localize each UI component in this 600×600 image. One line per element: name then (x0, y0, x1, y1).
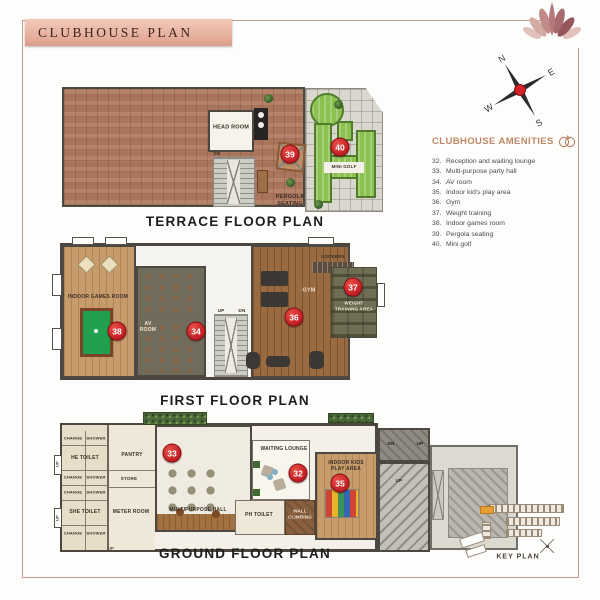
amenity-number: 35. (432, 189, 446, 196)
amenity-label: Pergola seating (446, 231, 493, 238)
pergola-seating-label: PERGOLA SEATING (268, 194, 312, 208)
plant-icon (286, 178, 295, 187)
av-room-label: AV ROOM (138, 321, 158, 334)
treadmill (261, 292, 288, 307)
first-floor-title: FIRST FLOOR PLAN (95, 393, 375, 408)
lockers-label: LOCKERS (321, 254, 344, 260)
landing-dn-label: DN (388, 441, 395, 447)
multipurpose-hall-label: MULTIPURPOSE HALL (169, 507, 226, 513)
marker-32-waiting-lounge: 32 (289, 464, 308, 483)
he-toilet-label: HE TOILET (71, 455, 99, 461)
marker-35-kids-play: 35 (331, 474, 350, 493)
amenity-item: 32.Reception and waiting lounge (432, 156, 578, 166)
amenity-item: 36.Gym (432, 198, 578, 208)
stair-landing-cross (225, 318, 237, 373)
amenity-item: 38.Indoor games room (432, 219, 578, 229)
entry-inner-court (448, 468, 508, 538)
amenity-item: 35.Indoor kid's play area (432, 187, 578, 197)
amenities-list: 32.Reception and waiting lounge 33.Multi… (432, 156, 578, 250)
lounge-table (272, 469, 278, 475)
lotus-petals (521, 2, 582, 41)
amenity-number: 36. (432, 199, 446, 206)
wall (108, 487, 155, 488)
key-plan-clubhouse-highlight (480, 506, 494, 514)
wall (108, 470, 155, 471)
billiards-cue-ball (94, 329, 98, 333)
amenity-number: 33. (432, 168, 446, 175)
amenity-label: Multi-purpose party hall (446, 168, 517, 175)
frame-left (22, 20, 23, 578)
kids-play-label: INDOOR KIDS PLAY AREA (323, 460, 369, 473)
amenity-number: 39. (432, 231, 446, 238)
wall-climbing-label: WALL CLIMBING (287, 508, 313, 519)
ground-floor-title: GROUND FLOOR PLAN (105, 546, 385, 561)
key-plan-plot-row (506, 529, 542, 537)
plant-box (253, 461, 260, 468)
amenity-number: 32. (432, 158, 446, 165)
plant-icon (264, 94, 273, 103)
exercise-bike (246, 352, 260, 369)
mini-golf-label: MINI GOLF (331, 164, 356, 170)
pantry-label: PANTRY (121, 452, 142, 458)
amenity-item: 40.Mini golf (432, 240, 578, 250)
marker-33-party-hall: 33 (163, 444, 182, 463)
window-ledge (52, 274, 62, 296)
amenities-header: CLUBHOUSE AMENITIES (432, 134, 578, 149)
meter-room-label: METER ROOM (113, 509, 149, 515)
treadmill (261, 271, 288, 286)
first-dn-label: DN (239, 308, 246, 314)
key-plan-label: KEY PLAN (496, 554, 539, 563)
amenity-label: Indoor kid's play area (446, 189, 510, 196)
key-plan-plot-row (488, 504, 564, 513)
store-label: STORE (121, 476, 137, 482)
amenity-number: 37. (432, 210, 446, 217)
kids-play-mat (325, 489, 359, 518)
amenity-label: Reception and waiting lounge (446, 158, 535, 165)
plant-box (253, 489, 260, 496)
compass-n: N (497, 53, 508, 65)
amenity-item: 39.Pergola seating (432, 229, 578, 239)
amenity-label: AV room (446, 179, 472, 186)
frame-right (578, 48, 579, 577)
shaft-fixture (258, 122, 264, 128)
amenity-number: 34. (432, 179, 446, 186)
amenity-item: 33.Multi-purpose party hall (432, 166, 578, 176)
ground-up-label: UP (55, 461, 60, 467)
ph-toilet-label: PH TOILET (245, 512, 273, 518)
window-ledge (52, 328, 62, 350)
rowing-machine (266, 356, 290, 367)
window-ledge (72, 237, 94, 245)
terrace-dn-label: DN (214, 151, 221, 157)
compass-rose: N E S W (478, 46, 562, 134)
lounge-table (267, 474, 273, 480)
banquet-tables (163, 465, 219, 513)
shower-label: SHOWER (86, 475, 105, 480)
change-label: CHANGE (64, 436, 83, 441)
plant-icon (314, 200, 323, 209)
change-label: CHANGE (64, 531, 83, 536)
amenity-number: 40. (432, 241, 446, 248)
title-banner: CLUBHOUSE PLAN (25, 19, 232, 46)
marker-34-av-room: 34 (187, 322, 206, 341)
she-toilet-label: SHE TOILET (69, 509, 100, 515)
amenities-title: CLUBHOUSE AMENITIES (432, 136, 554, 147)
terrace-deck (62, 87, 305, 207)
amenity-number: 38. (432, 220, 446, 227)
landing-up-label: UP (417, 441, 424, 447)
marker-38-indoor-games: 38 (108, 322, 127, 341)
change-label: CHANGE (64, 475, 83, 480)
indoor-games-room-label: INDOOR GAMES ROOM (68, 294, 128, 300)
marker-37-weight-training: 37 (344, 278, 363, 297)
head-room-label: HEAD ROOM (213, 125, 249, 132)
shower-label: SHOWER (86, 436, 105, 441)
window-ledge (377, 283, 385, 307)
deck-bench (257, 170, 268, 193)
clubhouse-plan-poster: CLUBHOUSE PLAN N E S W CLUBHOUSE AMENITI… (0, 0, 600, 600)
amenity-label: Indoor games room (446, 220, 505, 227)
marker-39-pergola: 39 (281, 145, 300, 164)
gym-label: GYM (302, 288, 315, 295)
amenity-label: Gym (446, 199, 460, 206)
marker-36-gym: 36 (285, 308, 304, 327)
window-ledge (308, 237, 334, 245)
marker-40-mini-golf: 40 (331, 138, 350, 157)
compass-e: E (546, 66, 556, 78)
shaft-fixture (258, 112, 264, 118)
lotus-logo-icon (520, 0, 584, 52)
frame-bottom (22, 577, 579, 578)
amenity-label: Mini golf (446, 241, 471, 248)
plant-icon (334, 100, 343, 109)
waiting-lounge-label: WAITING LOUNGE (261, 446, 308, 452)
shower-label: SHOWER (86, 490, 105, 495)
amenities-golf-icon (558, 134, 576, 149)
key-plan-plot-row (506, 517, 560, 526)
change-label: CHANGE (64, 490, 83, 495)
entry-ramp (378, 462, 430, 552)
compass-w: W (483, 101, 496, 114)
exercise-bike (309, 351, 324, 369)
compass-s: S (534, 117, 544, 129)
first-up-label: UP (218, 308, 225, 314)
stair-landing-cross (227, 160, 240, 204)
ground-up-label: UP (108, 546, 114, 551)
ramp-up-label: UP (396, 478, 403, 484)
window-ledge (105, 237, 127, 245)
hedge-strip (328, 413, 374, 423)
page-title: CLUBHOUSE PLAN (25, 25, 193, 41)
amenity-item: 34.AV room (432, 177, 578, 187)
terrace-floor-title: TERRACE FLOOR PLAN (95, 214, 375, 229)
amenity-label: Weight training (446, 210, 491, 217)
amenities-panel: CLUBHOUSE AMENITIES 32.Reception and wai… (432, 134, 578, 250)
shower-label: SHOWER (86, 531, 105, 536)
av-seating-bank (141, 271, 201, 316)
hedge-strip (143, 412, 207, 425)
entry-stair-strip (432, 470, 444, 520)
ground-up-label: UP (55, 515, 60, 521)
amenity-item: 37.Weight training (432, 208, 578, 218)
weight-training-label: WEIGHT TRAINING AREA (334, 300, 374, 311)
key-plan-compass-dot (546, 545, 549, 548)
